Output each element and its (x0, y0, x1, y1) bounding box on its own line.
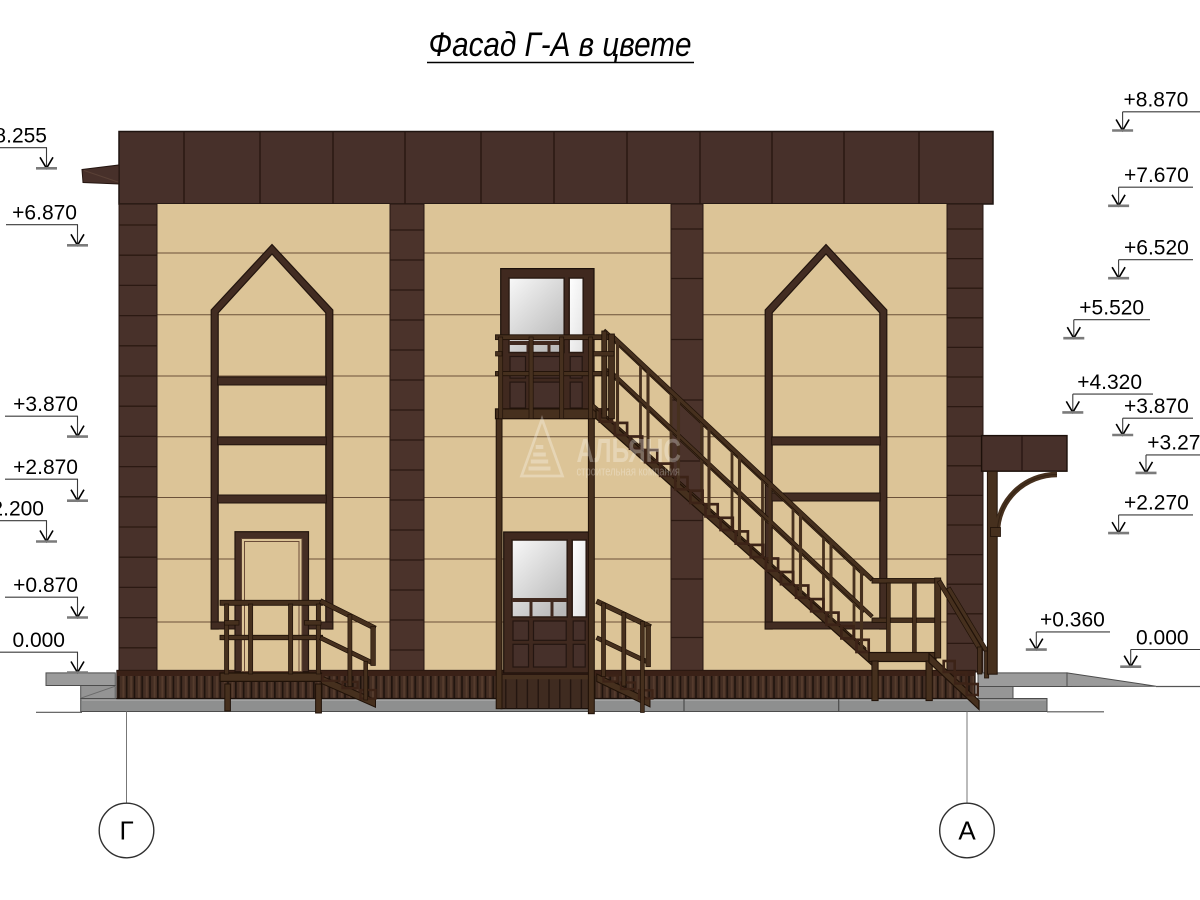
svg-text:+3.870: +3.870 (1124, 395, 1189, 418)
svg-text:Г: Г (119, 816, 133, 846)
svg-text:+5.520: +5.520 (1079, 297, 1144, 320)
svg-text:0.000: 0.000 (12, 629, 65, 652)
svg-text:+2.870: +2.870 (13, 456, 78, 479)
svg-text:+2.270: +2.270 (1124, 492, 1189, 515)
svg-text:+8.255: +8.255 (0, 125, 47, 148)
svg-text:+6.520: +6.520 (1124, 237, 1189, 260)
svg-text:+7.670: +7.670 (1124, 164, 1189, 187)
svg-text:+2.200: +2.200 (0, 498, 44, 521)
svg-text:А: А (958, 816, 976, 846)
svg-text:+0.870: +0.870 (13, 574, 78, 597)
svg-text:АЛЬЯНС: АЛЬЯНС (577, 432, 682, 469)
svg-text:строительная компания: строительная компания (577, 465, 681, 479)
svg-text:+4.320: +4.320 (1077, 371, 1142, 394)
svg-text:+3.270: +3.270 (1147, 432, 1200, 455)
svg-text:+8.870: +8.870 (1124, 89, 1189, 112)
svg-text:+3.870: +3.870 (13, 393, 78, 416)
svg-text:+6.870: +6.870 (12, 202, 77, 225)
svg-text:+0.360: +0.360 (1040, 609, 1105, 632)
svg-text:Фасад Г-А в цвете: Фасад Г-А в цвете (429, 26, 692, 64)
svg-text:0.000: 0.000 (1136, 626, 1189, 649)
